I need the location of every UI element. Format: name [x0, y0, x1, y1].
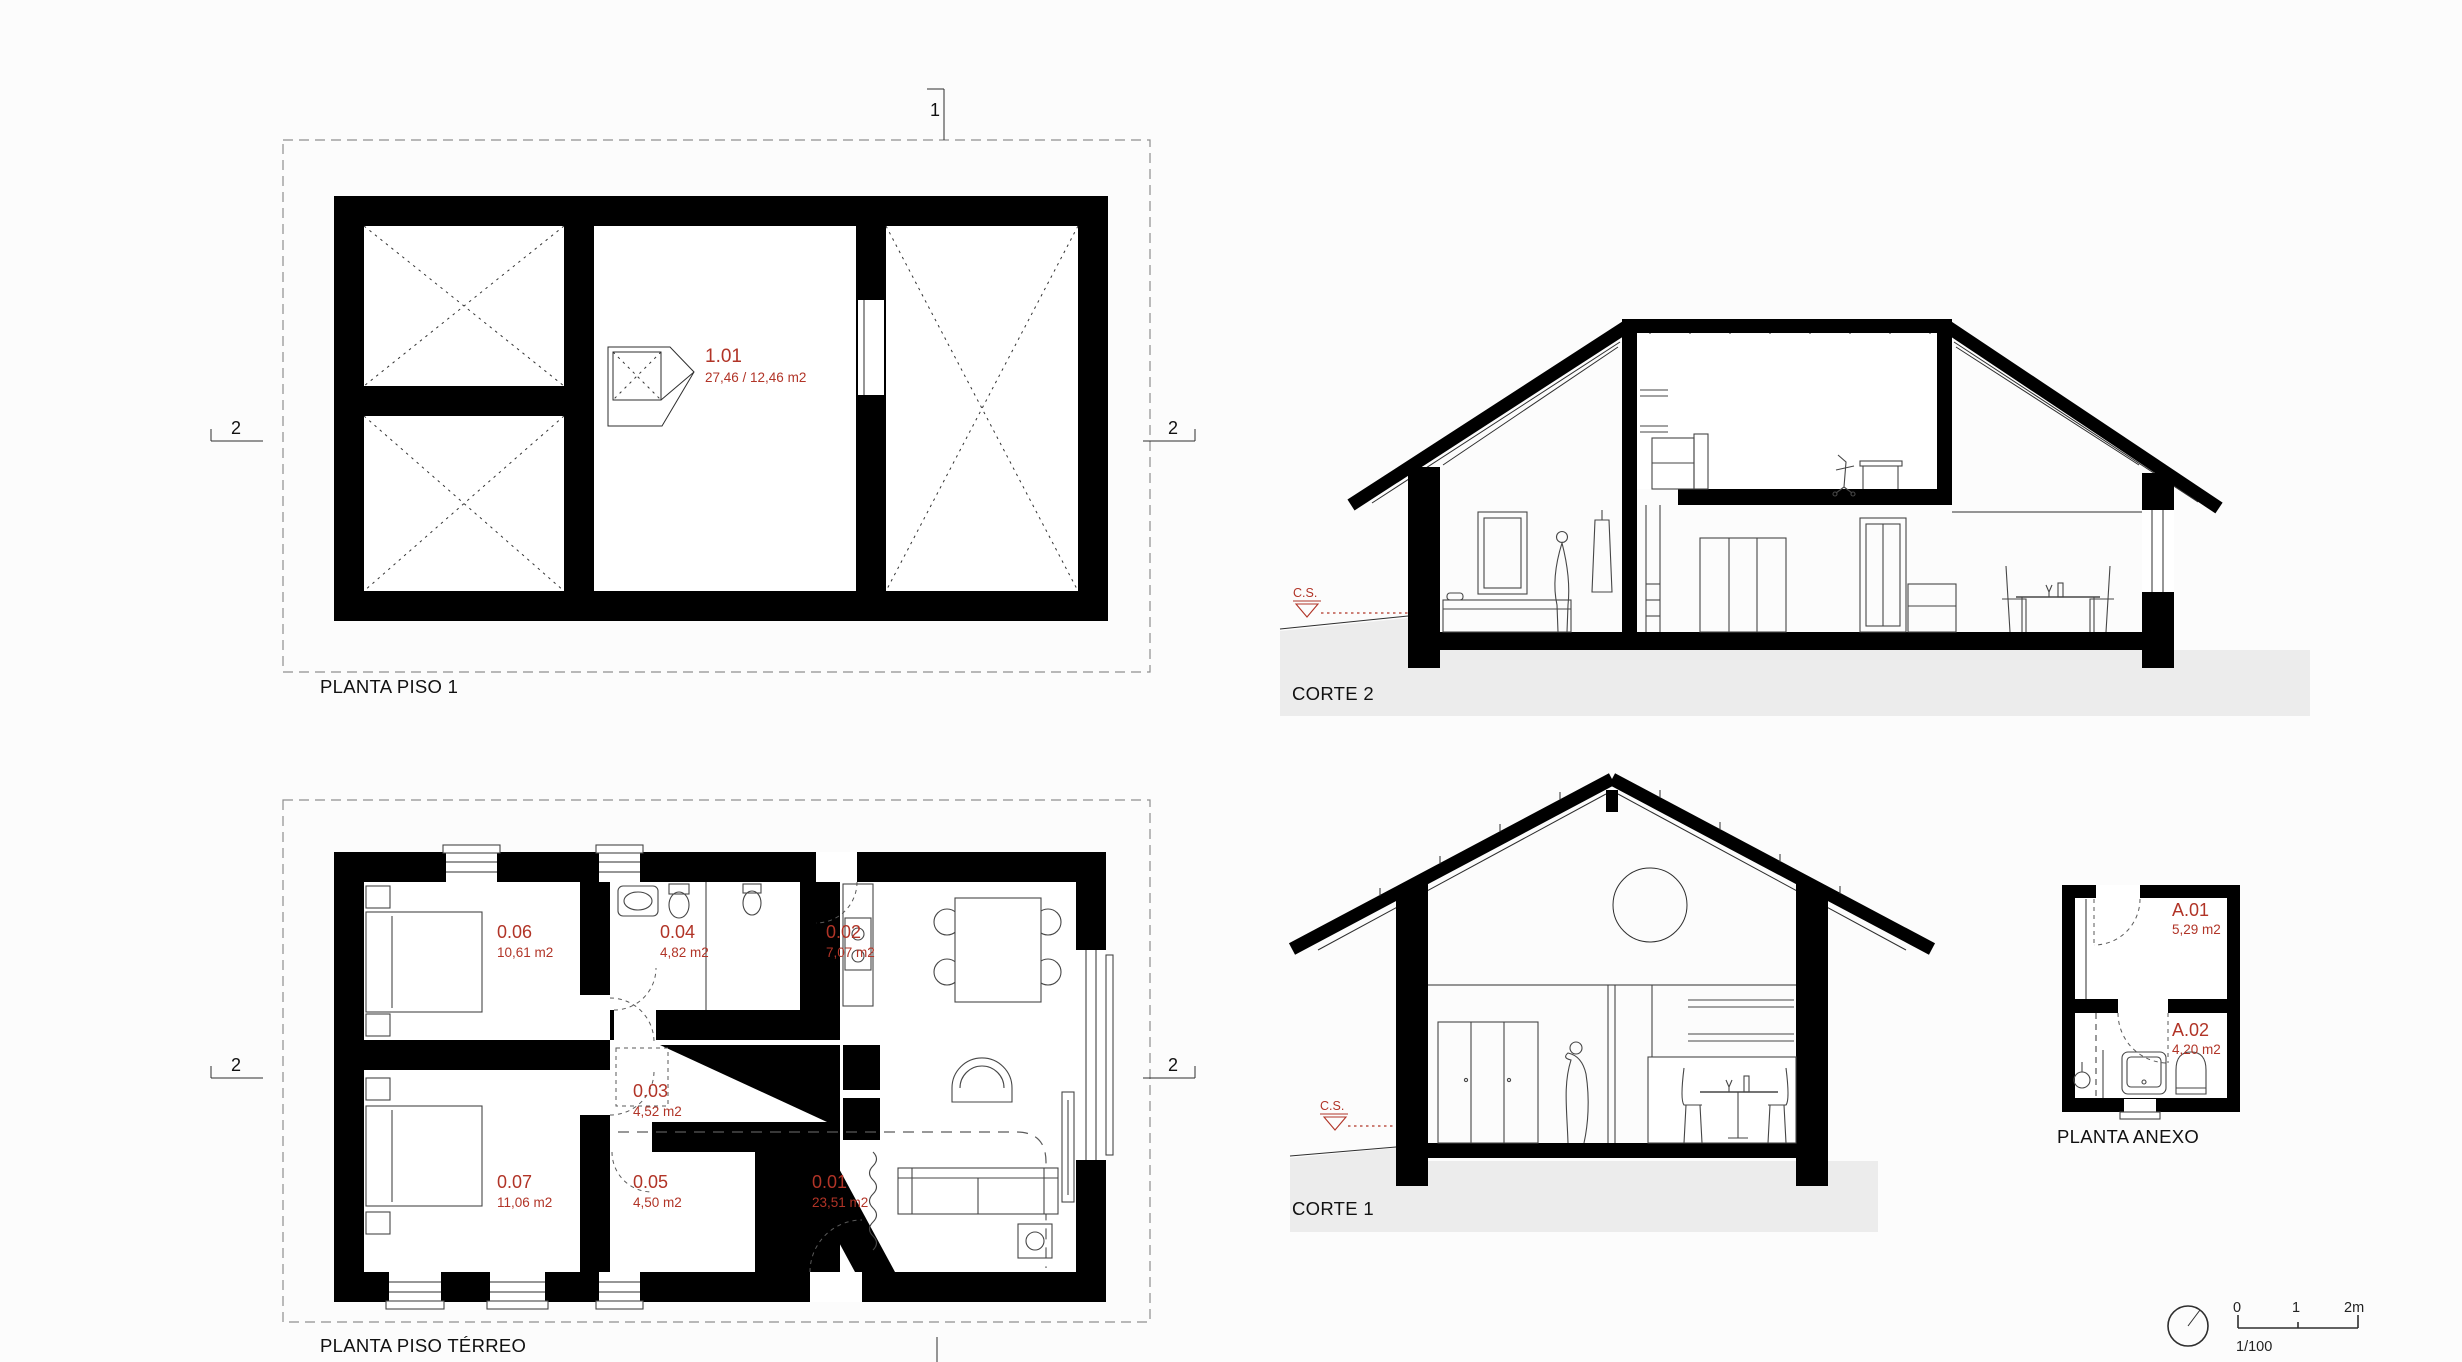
corte-2-drawing: C.S. CORTE 2: [1280, 319, 2310, 716]
room-label-0-06: 0.06: [497, 922, 532, 942]
section-marker-2-left: 2: [231, 418, 241, 438]
section-marker-1-top: 1: [930, 100, 940, 120]
room-label-0-07: 0.07: [497, 1172, 532, 1192]
section-marker-2-right: 2: [1168, 1055, 1178, 1075]
room-label-0-05: 0.05: [633, 1172, 668, 1192]
architectural-drawing-sheet: 1 2 2 1.01 27,46 / 12,46 m2: [0, 0, 2462, 1362]
section-marker-2-left: 2: [231, 1055, 241, 1075]
svg-text:C.S.: C.S.: [1320, 1099, 1344, 1113]
corte-1-drawing: C.S. CORTE 1: [1290, 779, 1932, 1232]
room-area-a-01: 5,29 m2: [2172, 922, 2221, 937]
room-area-0-05: 4,50 m2: [633, 1195, 682, 1210]
room-label-1-01: 1.01: [705, 346, 742, 367]
room-label-a-01: A.01: [2172, 900, 2209, 920]
room-area-0-06: 10,61 m2: [497, 945, 553, 960]
planta-piso-1-drawing: 1 2 2 1.01 27,46 / 12,46 m2: [211, 89, 1195, 697]
scale-tick-0: 0: [2233, 1300, 2241, 1316]
room-area-0-04: 4,82 m2: [660, 945, 709, 960]
ground-fill: [1290, 1148, 1878, 1232]
planta-anexo-drawing: A.01 5,29 m2 A.02 4,20 m2 PLANTA ANEXO: [2057, 885, 2240, 1147]
scale-ratio: 1/100: [2236, 1339, 2272, 1355]
svg-text:C.S.: C.S.: [1293, 586, 1317, 600]
level-marker-cs-corte1: C.S.: [1320, 1099, 1396, 1130]
room-label-0-02: 0.02: [826, 922, 861, 942]
plan-title-terreo: PLANTA PISO TÉRREO: [320, 1335, 526, 1356]
section-title-corte2: CORTE 2: [1292, 683, 1374, 704]
scale-tick-1: 1: [2292, 1300, 2300, 1316]
room-area-0-07: 11,06 m2: [497, 1195, 552, 1210]
room-label-a-02: A.02: [2172, 1020, 2209, 1040]
room-label-0-01: 0.01: [812, 1172, 847, 1192]
plan-title-piso1: PLANTA PISO 1: [320, 676, 458, 697]
round-window: [1613, 868, 1687, 942]
room-area-0-03: 4,52 m2: [633, 1104, 682, 1119]
scale-tick-2m: 2m: [2344, 1300, 2364, 1316]
planta-piso-terreo-drawing: 2 2: [211, 800, 1195, 1362]
drawing-canvas: 1 2 2 1.01 27,46 / 12,46 m2: [0, 0, 2462, 1362]
room-area-0-01: 23,51 m2: [812, 1195, 868, 1210]
section-marker-2-right: 2: [1168, 418, 1178, 438]
room-area-0-02: 7,07 m2: [826, 945, 875, 960]
room-area-1-01: 27,46 / 12,46 m2: [705, 370, 806, 385]
room-label-0-03: 0.03: [633, 1081, 668, 1101]
scale-bar: 0 1 2m 1/100: [2168, 1300, 2364, 1355]
section-furniture: [1438, 985, 1796, 1143]
level-marker-cs-corte2: C.S.: [1293, 586, 1408, 617]
plan-title-anexo: PLANTA ANEXO: [2057, 1126, 2199, 1147]
room-area-a-02: 4,20 m2: [2172, 1042, 2221, 1057]
room-label-0-04: 0.04: [660, 922, 695, 942]
section-title-corte1: CORTE 1: [1292, 1198, 1374, 1219]
